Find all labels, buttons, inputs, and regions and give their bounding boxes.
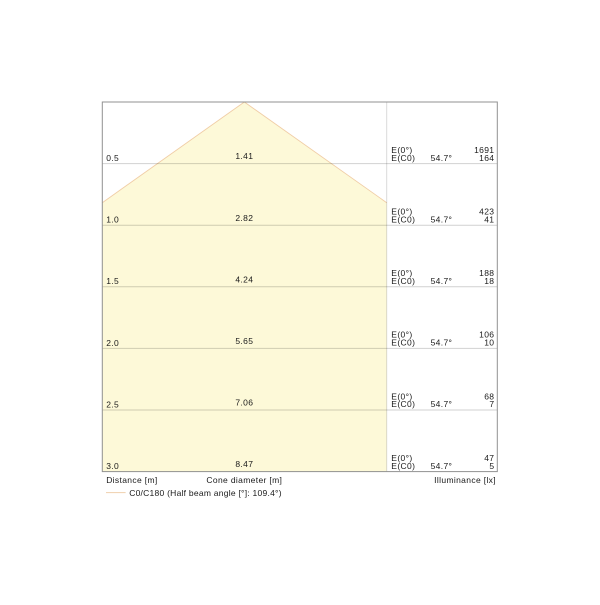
svg-text:54.7°: 54.7° <box>431 399 453 409</box>
svg-text:2.5: 2.5 <box>106 399 119 409</box>
svg-text:4.24: 4.24 <box>235 274 253 284</box>
svg-text:Cone diameter [m]: Cone diameter [m] <box>206 475 282 485</box>
svg-text:54.7°: 54.7° <box>431 276 453 286</box>
svg-text:10: 10 <box>484 338 494 348</box>
svg-text:7: 7 <box>489 399 494 409</box>
svg-text:5: 5 <box>489 461 494 471</box>
svg-text:E(C0): E(C0) <box>391 461 415 471</box>
svg-text:18: 18 <box>484 276 494 286</box>
svg-text:164: 164 <box>479 153 494 163</box>
svg-text:E(C0): E(C0) <box>391 399 415 409</box>
svg-text:2.82: 2.82 <box>235 213 253 223</box>
svg-text:3.0: 3.0 <box>106 461 119 471</box>
svg-text:54.7°: 54.7° <box>431 153 453 163</box>
svg-text:C0/C180 (Half beam angle [°]:: C0/C180 (Half beam angle [°]: 109.4°) <box>129 488 282 498</box>
svg-text:E(C0): E(C0) <box>391 153 415 163</box>
svg-text:E(C0): E(C0) <box>391 338 415 348</box>
svg-text:5.65: 5.65 <box>235 336 253 346</box>
svg-text:1.41: 1.41 <box>235 151 253 161</box>
svg-text:8.47: 8.47 <box>235 459 253 469</box>
svg-text:E(C0): E(C0) <box>391 276 415 286</box>
svg-text:54.7°: 54.7° <box>431 461 453 471</box>
svg-text:41: 41 <box>484 214 494 224</box>
svg-text:54.7°: 54.7° <box>431 338 453 348</box>
svg-text:Illuminance [lx]: Illuminance [lx] <box>434 475 496 485</box>
svg-text:1.5: 1.5 <box>106 276 119 286</box>
svg-text:54.7°: 54.7° <box>431 214 453 224</box>
svg-text:0.5: 0.5 <box>106 153 119 163</box>
svg-text:1.0: 1.0 <box>106 215 119 225</box>
svg-text:E(C0): E(C0) <box>391 214 415 224</box>
svg-text:Distance [m]: Distance [m] <box>106 475 157 485</box>
svg-text:2.0: 2.0 <box>106 338 119 348</box>
svg-text:7.06: 7.06 <box>235 398 253 408</box>
